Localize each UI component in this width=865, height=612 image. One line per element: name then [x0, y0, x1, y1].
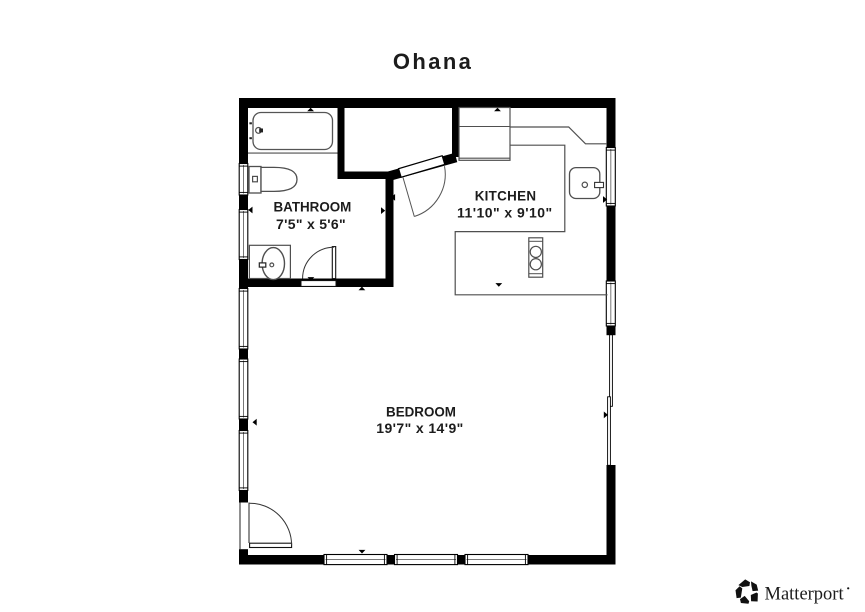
svg-text:BATHROOM: BATHROOM — [273, 200, 351, 215]
svg-text:19'7" x 14'9": 19'7" x 14'9" — [376, 420, 463, 436]
svg-text:7'5" x 5'6": 7'5" x 5'6" — [276, 216, 346, 232]
svg-text:BEDROOM: BEDROOM — [386, 404, 456, 419]
svg-text:Ohana: Ohana — [393, 49, 473, 74]
svg-text:Matterport: Matterport — [765, 584, 845, 604]
svg-text:11'10" x 9'10": 11'10" x 9'10" — [457, 204, 553, 220]
svg-text:KITCHEN: KITCHEN — [475, 189, 537, 204]
